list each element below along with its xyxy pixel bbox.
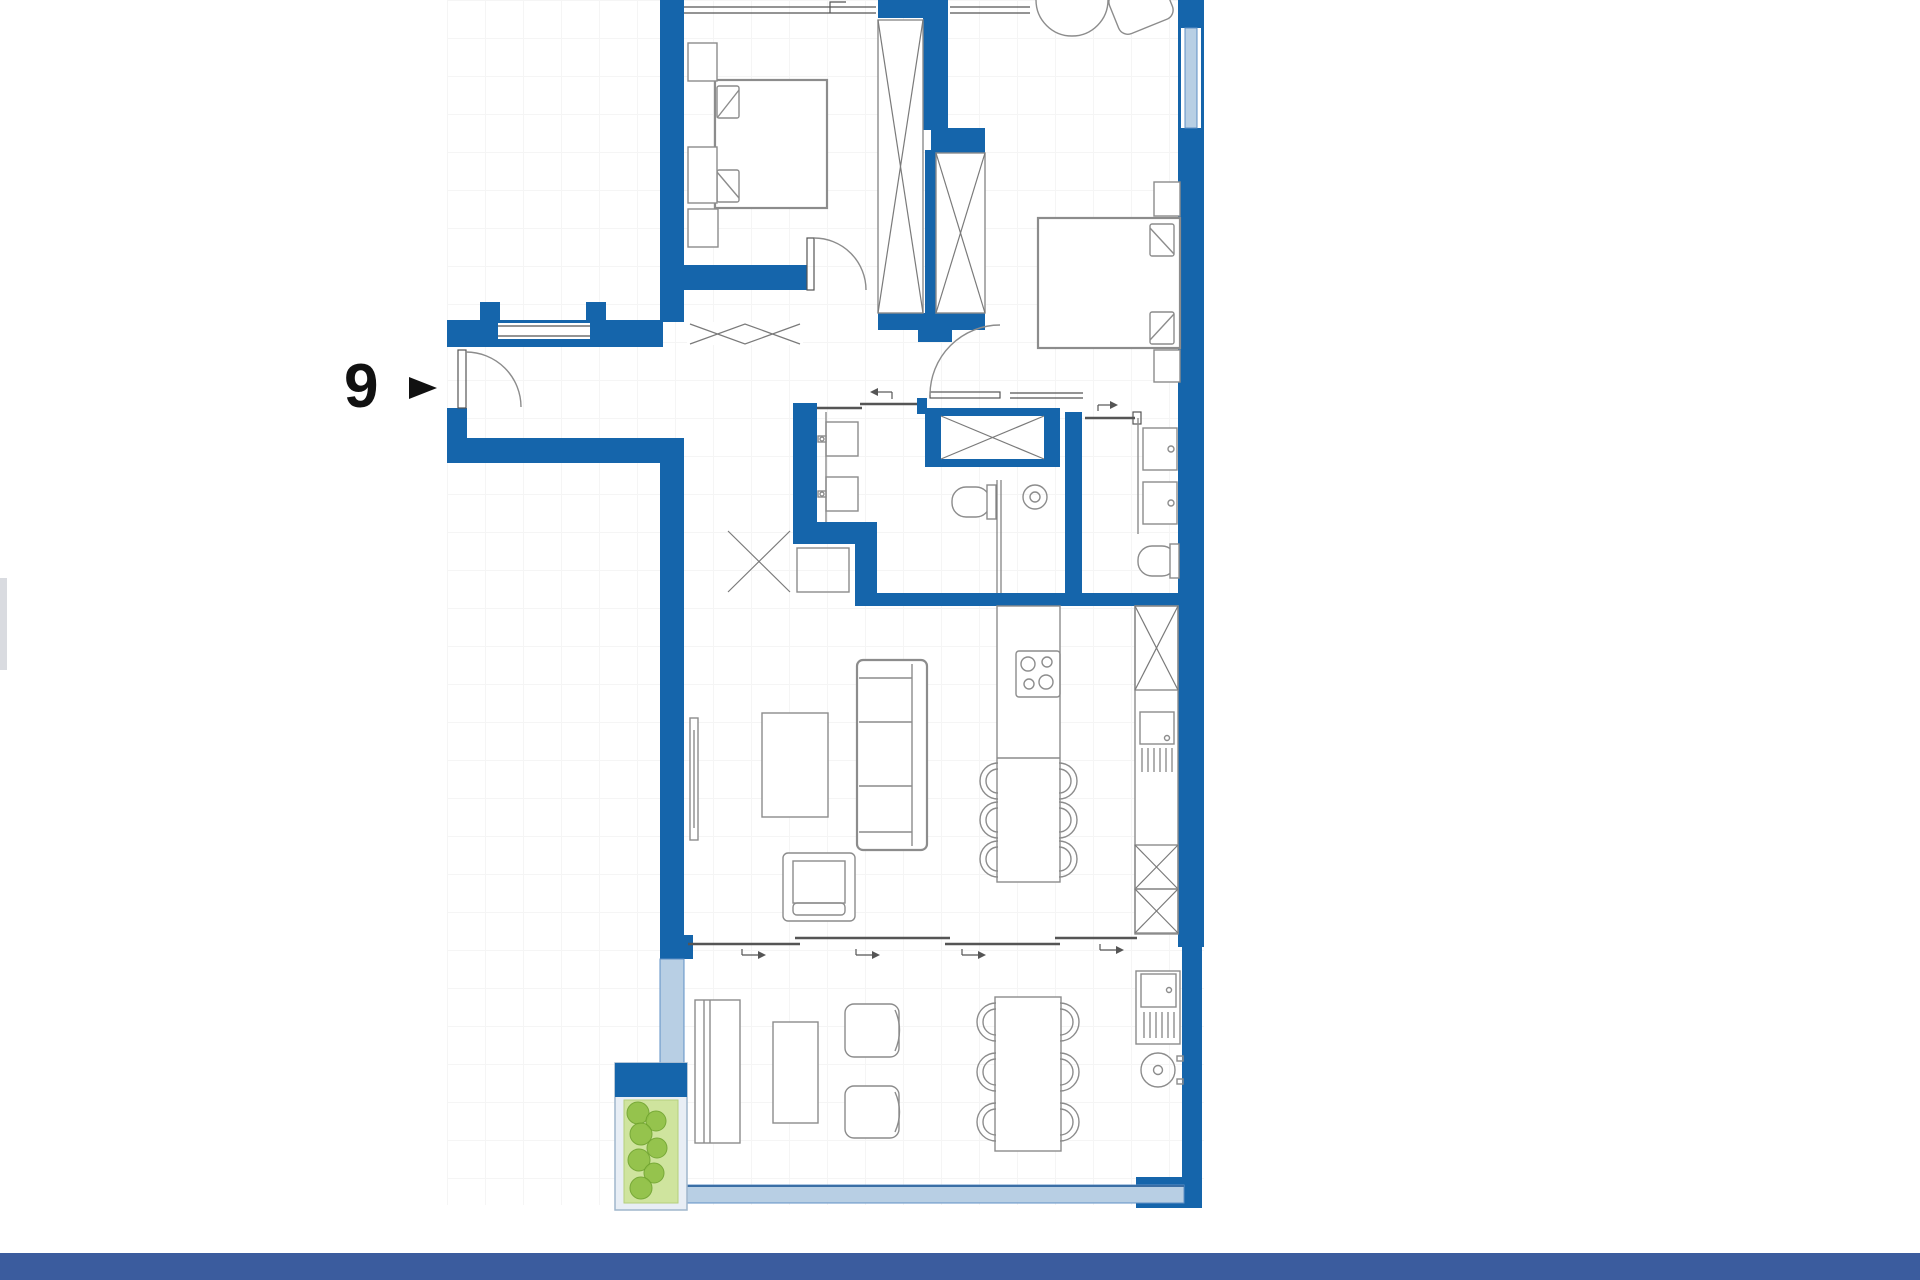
wall-segment bbox=[586, 302, 606, 322]
wall-segment bbox=[923, 0, 948, 130]
wardrobe-x-right bbox=[936, 153, 985, 313]
bathroom-2-sliding-door bbox=[1085, 401, 1141, 424]
wall-segment bbox=[878, 313, 985, 330]
coffee-table bbox=[762, 713, 828, 817]
top-windows bbox=[684, 2, 1030, 13]
kitchen-island bbox=[997, 606, 1060, 882]
nightstand bbox=[1154, 350, 1180, 382]
slide-arrow bbox=[1100, 944, 1124, 954]
unit-number: 9 bbox=[344, 356, 378, 418]
shower-tray bbox=[797, 548, 849, 592]
footer-bar bbox=[0, 1253, 1920, 1280]
lounge-seat bbox=[1106, 0, 1176, 37]
bedroom-1-bed bbox=[715, 80, 827, 208]
coat-rack bbox=[687, 322, 803, 345]
sink bbox=[826, 422, 858, 456]
wall-segment bbox=[918, 330, 952, 342]
wardrobe-x-left bbox=[878, 20, 923, 313]
toilet bbox=[1138, 544, 1179, 578]
floor-plan bbox=[0, 0, 1920, 1280]
bedroom-2-bed bbox=[1038, 218, 1180, 348]
lounge-chair bbox=[845, 1086, 900, 1138]
right-arrow-marker-icon bbox=[409, 377, 437, 399]
side-table bbox=[773, 1022, 818, 1123]
nightstand bbox=[688, 43, 717, 81]
plant bbox=[630, 1177, 652, 1199]
cross-mark bbox=[728, 531, 790, 592]
sink bbox=[1143, 482, 1177, 524]
wall-segment bbox=[931, 128, 985, 153]
wall-segment bbox=[855, 544, 877, 596]
wall-segment bbox=[793, 522, 877, 544]
page: 9 bbox=[0, 0, 1920, 1280]
outdoor-dining-table bbox=[995, 997, 1061, 1151]
wall-segment bbox=[1182, 947, 1202, 1179]
wall-segment bbox=[660, 935, 693, 959]
wall-segment bbox=[682, 265, 807, 290]
wall-segment bbox=[447, 408, 467, 438]
entrance-window bbox=[498, 323, 590, 339]
toilet bbox=[952, 485, 996, 519]
sink bbox=[1143, 428, 1177, 470]
wall-segment bbox=[660, 0, 684, 322]
slide-arrow bbox=[856, 949, 880, 959]
floor-drain bbox=[1023, 485, 1047, 509]
round-chair bbox=[1036, 0, 1108, 36]
planter bbox=[615, 1063, 687, 1210]
wall-segment bbox=[925, 150, 936, 315]
nightstand bbox=[688, 147, 717, 203]
entrance-door bbox=[458, 350, 521, 408]
sofa bbox=[857, 660, 927, 850]
armchair bbox=[783, 853, 855, 921]
window bbox=[1185, 28, 1197, 128]
plant bbox=[647, 1138, 667, 1158]
bedroom-1-door bbox=[807, 238, 866, 290]
console-table bbox=[695, 1000, 740, 1143]
outdoor-sink-unit bbox=[1136, 971, 1180, 1044]
wall-segment bbox=[447, 438, 684, 463]
kitchen-cabinets bbox=[1135, 606, 1178, 934]
wall-segment bbox=[1178, 0, 1204, 947]
sink bbox=[826, 477, 858, 511]
sliding-glass-door bbox=[688, 938, 1137, 959]
bathroom-2-vanity bbox=[1138, 418, 1177, 534]
nightstand bbox=[1154, 182, 1180, 216]
slide-arrow bbox=[962, 949, 986, 959]
tv-unit bbox=[690, 718, 698, 840]
lounge-chair bbox=[845, 1004, 900, 1057]
bathroom-1-vanity bbox=[818, 412, 858, 522]
barbecue-grill bbox=[1141, 1053, 1183, 1087]
dresser bbox=[688, 209, 718, 247]
page-edge-artifact bbox=[0, 578, 7, 670]
wall-segment bbox=[1065, 412, 1082, 593]
wall-segment bbox=[855, 593, 1183, 606]
bathroom-1-sliding-door bbox=[817, 388, 917, 408]
wall-segment bbox=[660, 463, 684, 935]
slide-arrow bbox=[742, 949, 766, 959]
wall-segment bbox=[480, 302, 500, 322]
